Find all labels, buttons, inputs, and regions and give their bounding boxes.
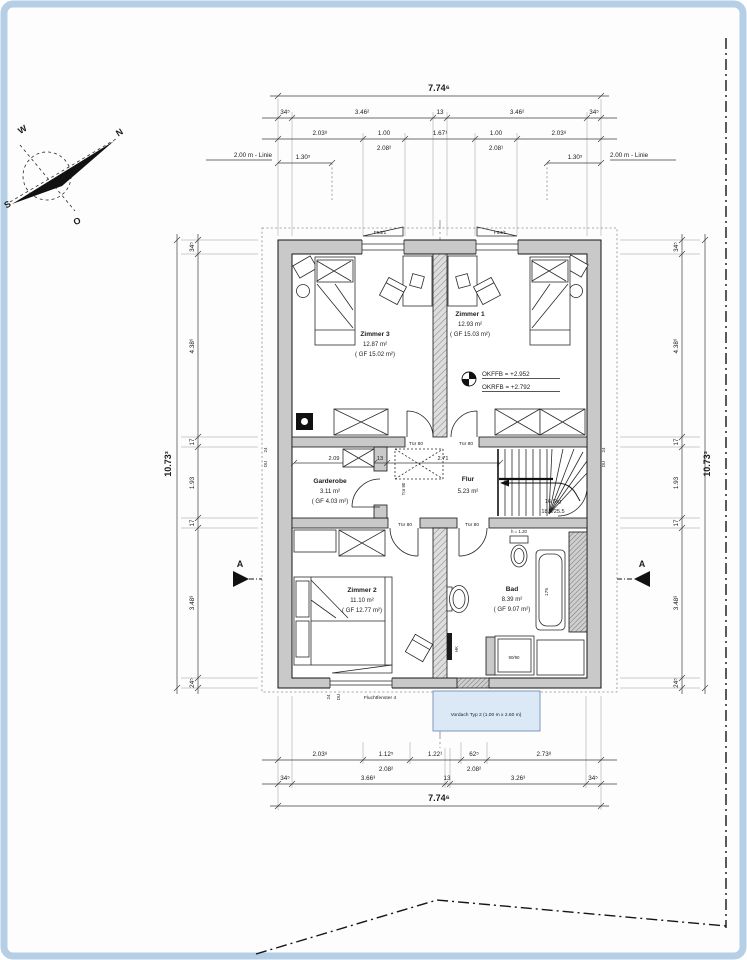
dim-top-r2-2: 13 [436,109,444,116]
small-du-bottom: DU [336,694,341,700]
wall-installation-shaft [569,532,587,632]
dim-left-c1: 4.38⁶ [189,338,196,353]
section-a-right-label: A [639,559,646,569]
dim-left-c3: 1.93 [189,476,196,489]
dim-left-c2: 17 [189,438,196,446]
dim-right-c2: 17 [673,438,680,446]
z2-dresser [294,530,336,552]
z3-desk-item [410,274,425,289]
shower-size-label: 90/90 [509,655,521,660]
dim-left-c5: 3.48³ [189,596,196,610]
zimmer2-gf: ( GF 12.77 m²) [342,607,382,614]
dim-bottom-overall: 7.74⁶ [428,793,450,803]
zimmer3-area: 12.87 m² [363,341,387,348]
z3-stool [297,285,310,298]
small-24-right: 24 [601,447,606,452]
flur-name: Flur [462,476,475,483]
small-du-right: DU [601,461,606,467]
dim-right-c3: 1.93 [673,476,680,489]
small-24-bottom: 24 [326,694,331,699]
linie-label-right: 2.00 m - Linie [610,152,649,159]
wall-corridor-top-left [292,437,405,447]
door-label-z1: Tür 80 [459,441,473,447]
dim-top-r3sub-0: 2.08² [377,145,391,152]
vordach-callout: Vordach Typ 2 (1.00 m x 2.60 m) [433,691,540,731]
bad-storage [537,640,584,675]
dim-bot-r1sub-1: 2.08² [467,766,481,773]
dim-right-c0: 34⁵ [673,242,680,252]
bathtub [536,550,565,630]
floor-plan-drawing: W N S O 7.74⁶ 34⁵ 3.46² 13 3.46² 34⁵ 2.0… [0,0,747,960]
dim-bot-r2-0: 34⁵ [280,775,290,782]
garderobe-gf: ( GF 4.03 m²) [312,498,349,505]
stairs-count: 16 Stg [545,499,561,505]
door-label-garderobe: Tür 80 [401,482,406,495]
garderobe-area: 3.11 m² [320,488,340,495]
dim-right-c1: 4.38⁶ [673,338,680,353]
dim-bot-r2-1: 3.66³ [361,775,375,782]
z1-desk-item [456,274,471,289]
dim-top-r3-0: 2.03⁸ [313,130,328,137]
wall-corridor-bottom-mid [420,518,457,528]
z2-pillow-2 [296,621,309,657]
zimmer2-area: 11.10 m² [350,597,374,604]
dim-top-r2-4: 34⁵ [589,109,599,116]
door-label-z2: Tür 80 [398,522,412,528]
vordach-box [433,691,540,731]
dim-bot-r2-3: 3.26³ [511,775,525,782]
z2-pillow-1 [296,581,309,617]
dim-bot-r1-0: 2.03⁸ [313,751,328,758]
wall-corridor-top-right [479,437,587,447]
dim-garderobe-0: 2.09 [329,456,340,462]
door-label-z3: Tür 80 [409,441,423,447]
bathtub-size-label: 175 [544,588,550,596]
linie-label-left: 2.00 m - Linie [234,152,273,159]
zimmer1-name: Zimmer 1 [455,311,485,318]
wall-corridor-bottom-right [489,518,587,528]
dim-top-r3-4: 2.03⁸ [552,130,567,137]
dim-top-r2-1: 3.46² [355,109,369,116]
window-f53-label: F53/1 [374,230,387,236]
fluchtfenster-label: Fluchtfenster 4 [364,695,397,701]
dim-bot-r1-1: 1.12⁵ [379,751,394,758]
dim-left-c6: 24⁵ [189,678,196,688]
dim-right-c6: 24⁵ [673,678,680,688]
dim-right-c5: 3.48³ [673,596,680,610]
zimmer3-name: Zimmer 3 [360,331,390,338]
wall-center-bottom [433,528,447,678]
dim-bot-r1-2: 1.22¹ [428,751,442,758]
dim-left-overall: 10.73³ [163,451,173,477]
dim-bot-r1-3: 62⁵ [469,751,479,758]
dim-right-overall: 10.73³ [702,451,712,477]
dim-top-r3sub-1: 2.08¹ [489,145,503,152]
small-du-left: DU [263,461,268,467]
door-label-bad: Tür 80 [465,522,479,528]
dim-top-r3-3: 1.00 [490,130,503,137]
bad-name: Bad [506,586,518,593]
dim-left-c4: 17 [189,519,196,527]
dim-bot-r1-4: 2.73⁸ [537,751,552,758]
zimmer1-gf: ( GF 15.03 m²) [450,331,490,338]
dim-garderobe-1: 13 [377,456,383,462]
bad-gf: ( GF 9.07 m²) [494,606,531,613]
zimmer2-name: Zimmer 2 [347,587,377,594]
wall-shower-stub [486,637,496,675]
wall-corridor-bottom-left [292,518,388,528]
dim-top-r2-0: 34⁵ [280,109,290,116]
dim-offset-left: 1.30⁵ [296,154,311,161]
section-a-left-label: A [237,559,244,569]
toilet-tank [510,536,528,543]
dim-bot-r2-2: 13 [443,775,451,782]
dim-top-r2-3: 3.46² [510,109,524,116]
dim-left-c0: 34⁵ [189,242,196,252]
okffb-label: OKFFB = +2.952 [482,371,530,378]
wall-center-top [433,254,447,437]
dim-top-r3-1: 1.00 [378,130,391,137]
stairs-ratio: 18.5/25.5 [541,509,564,515]
floor-plan-page: W N S O 7.74⁶ 34⁵ 3.46² 13 3.46² 34⁵ 2.0… [0,0,747,960]
small-24-left: 24 [263,447,268,452]
garderobe-name: Garderobe [313,478,347,485]
window-f54-label: F54/1 [494,230,507,236]
dim-offset-right: 1.30⁵ [568,154,583,161]
dim-top-overall: 7.74⁶ [428,83,450,93]
z1-stool [570,285,583,298]
radiator-label: HK [454,646,459,652]
toilet-height-label: h = 1.20 [511,529,528,534]
zimmer3-gf: ( GF 15.02 m²) [355,351,395,358]
dim-bot-r1sub-0: 2.08² [379,766,393,773]
bad-area: 8.39 m² [502,596,523,603]
okrfb-label: OKRFB = +2.792 [482,384,531,391]
zimmer1-area: 12.93 m² [458,321,482,328]
dim-right-c4: 17 [673,519,680,527]
dim-bot-r2-4: 34⁵ [588,775,598,782]
dim-top-r3-2: 1.67¹ [433,130,447,137]
radiator [447,633,452,660]
vordach-label: Vordach Typ 2 (1.00 m x 2.60 m) [451,712,522,718]
flur-area: 5.23 m² [458,488,479,495]
